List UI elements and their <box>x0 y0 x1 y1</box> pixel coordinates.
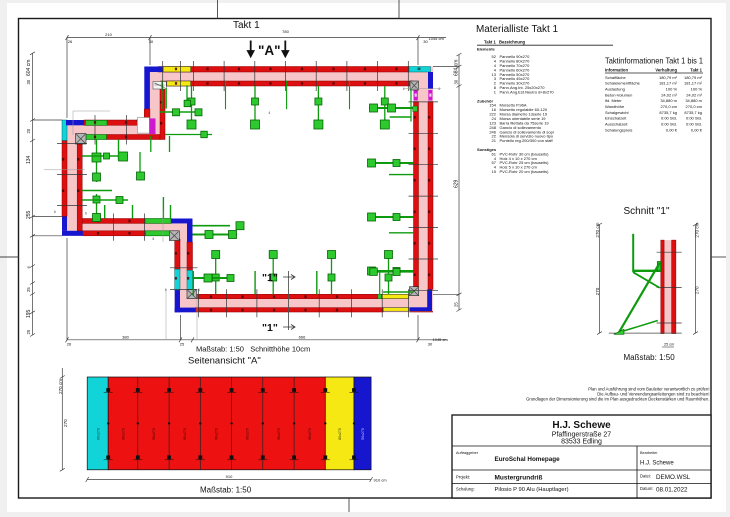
svg-text:Puntello reg.200/300 con staff: Puntello reg.200/300 con staff <box>500 138 554 143</box>
svg-text:604 cm: 604 cm <box>26 60 32 76</box>
svg-text:Takt 1: Takt 1 <box>484 40 496 45</box>
svg-text:210: 210 <box>105 32 112 37</box>
svg-text:4: 4 <box>403 87 405 91</box>
svg-text:Information: Information <box>605 68 628 73</box>
svg-text:270 cm: 270 cm <box>595 222 600 237</box>
svg-text:30: 30 <box>26 79 31 84</box>
svg-text:270: 270 <box>63 419 68 427</box>
svg-text:DEMO.WSL: DEMO.WSL <box>656 474 691 481</box>
svg-text:08.01.2022: 08.01.2022 <box>656 487 688 494</box>
svg-text:Wandhöhe: Wandhöhe <box>605 104 625 109</box>
svg-text:4: 4 <box>269 111 271 115</box>
svg-text:Maßstab: 1:50: Maßstab: 1:50 <box>624 353 676 362</box>
svg-text:8735,7 kg: 8735,7 kg <box>684 110 702 115</box>
svg-text:83533 Edling: 83533 Edling <box>561 439 602 446</box>
svg-text:Ausschalzeit: Ausschalzeit <box>605 122 628 127</box>
svg-text:Schalelementfläche: Schalelementfläche <box>605 81 641 86</box>
svg-text:"1": "1" <box>262 272 278 284</box>
svg-text:1045 cm: 1045 cm <box>429 36 445 41</box>
svg-text:4: 4 <box>438 87 440 91</box>
svg-text:Schalungspreis: Schalungspreis <box>605 127 632 132</box>
svg-text:0,00 €: 0,00 € <box>666 127 678 132</box>
svg-text:30: 30 <box>149 39 154 44</box>
svg-text:0:00 Std.: 0:00 Std. <box>686 116 702 121</box>
svg-text:26: 26 <box>67 342 72 347</box>
svg-text:181,17 m²: 181,17 m² <box>684 81 703 86</box>
svg-text:684 cm: 684 cm <box>453 60 459 76</box>
svg-text:Schalung:: Schalung: <box>456 487 475 492</box>
svg-text:780: 780 <box>282 29 289 34</box>
svg-text:H.J. Schewe: H.J. Schewe <box>640 461 674 467</box>
svg-text:0,00 €: 0,00 € <box>691 127 703 132</box>
svg-text:15: 15 <box>492 169 497 174</box>
svg-text:629: 629 <box>453 179 459 188</box>
svg-text:910: 910 <box>226 474 233 479</box>
svg-text:Mustergrundriß: Mustergrundriß <box>495 475 543 482</box>
svg-text:0:00 Std.: 0:00 Std. <box>661 122 677 127</box>
svg-text:EuroSchal Homepage: EuroSchal Homepage <box>495 456 561 463</box>
svg-text:50x270: 50x270 <box>361 428 365 440</box>
svg-text:Maßstab: 1:50: Maßstab: 1:50 <box>200 486 252 495</box>
svg-text:Verhaltung: Verhaltung <box>655 68 677 73</box>
svg-text:34,880 m: 34,880 m <box>660 98 677 103</box>
svg-text:Maßstab: 1:50 Schnitthöhe 10: Maßstab: 1:50 Schnitthöhe 10cm <box>196 345 310 354</box>
svg-text:30: 30 <box>428 342 433 347</box>
svg-text:"A": "A" <box>258 43 281 58</box>
svg-text:25 cm: 25 cm <box>664 343 674 347</box>
svg-text:180,79 m²: 180,79 m² <box>659 75 678 80</box>
svg-text:Bearbeiter: Bearbeiter <box>640 451 658 455</box>
svg-text:H.J. Schewe: H.J. Schewe <box>552 420 611 431</box>
svg-text:Taktinformationen Takt 1 bis: Taktinformationen Takt 1 bis 1 <box>605 56 703 66</box>
svg-text:255: 255 <box>26 210 32 219</box>
svg-text:Beton-Volumen: Beton-Volumen <box>605 92 632 97</box>
svg-text:"1": "1" <box>262 322 278 334</box>
svg-text:0:00 Std.: 0:00 Std. <box>686 122 702 127</box>
svg-text:24,02 m³: 24,02 m³ <box>686 92 702 97</box>
svg-text:6: 6 <box>54 210 56 214</box>
svg-text:134: 134 <box>26 155 32 164</box>
svg-text:90x270: 90x270 <box>215 428 219 440</box>
svg-text:270: 270 <box>695 286 700 294</box>
svg-text:Auslastung: Auslastung <box>605 87 625 92</box>
svg-text:Schnitt "1": Schnitt "1" <box>624 206 670 217</box>
svg-text:180,79 m²: 180,79 m² <box>684 75 703 80</box>
svg-text:Grundlagen der Dimensionierung: Grundlagen der Dimensionierung sind die … <box>526 397 709 402</box>
svg-text:25: 25 <box>26 287 31 292</box>
svg-text:Elemente: Elemente <box>477 47 496 52</box>
svg-text:Schalfläche: Schalfläche <box>605 75 626 80</box>
svg-text:25: 25 <box>453 302 458 307</box>
svg-text:195: 195 <box>26 309 32 318</box>
svg-text:6: 6 <box>153 237 155 241</box>
svg-text:910 cm: 910 cm <box>374 477 388 482</box>
svg-text:Auftraggeber: Auftraggeber <box>456 451 479 455</box>
svg-text:666: 666 <box>299 334 306 339</box>
svg-text:Schalgewicht: Schalgewicht <box>605 110 629 115</box>
svg-text:6: 6 <box>198 288 200 292</box>
svg-text:90x270: 90x270 <box>183 428 187 440</box>
svg-text:20: 20 <box>26 128 31 133</box>
svg-text:90x270: 90x270 <box>277 428 281 440</box>
svg-text:270 cm: 270 cm <box>695 222 700 237</box>
svg-text:80x270: 80x270 <box>338 428 342 440</box>
svg-text:90x270: 90x270 <box>308 428 312 440</box>
svg-text:Takt 1: Takt 1 <box>233 20 260 31</box>
svg-text:181,17 m²: 181,17 m² <box>659 81 678 86</box>
svg-text:Einschalzeit: Einschalzeit <box>605 116 627 121</box>
svg-text:270,0 cm: 270,0 cm <box>661 104 678 109</box>
svg-text:25: 25 <box>26 329 31 334</box>
svg-text:26: 26 <box>68 39 73 44</box>
svg-text:60x270: 60x270 <box>97 428 101 440</box>
svg-text:380: 380 <box>122 334 129 339</box>
svg-text:Datei:: Datei: <box>640 474 651 479</box>
svg-text:90x270: 90x270 <box>246 428 250 440</box>
svg-text:Bezeichnung: Bezeichnung <box>499 40 525 45</box>
svg-text:0:00 Std.: 0:00 Std. <box>661 116 677 121</box>
svg-text:1045 cm: 1045 cm <box>433 337 449 342</box>
svg-text:30: 30 <box>453 79 458 84</box>
svg-text:Seitenansicht "A": Seitenansicht "A" <box>188 356 261 367</box>
svg-text:lfd. Meter: lfd. Meter <box>605 98 622 103</box>
svg-text:Projekt:: Projekt: <box>456 475 470 480</box>
svg-text:90x270: 90x270 <box>152 428 156 440</box>
svg-text:100 %: 100 % <box>666 87 678 92</box>
svg-text:100 %: 100 % <box>691 87 703 92</box>
svg-text:Pfaffingerstraße 27: Pfaffingerstraße 27 <box>552 432 612 439</box>
svg-text:6: 6 <box>85 212 87 216</box>
svg-text:PVC-Rohr 20 cm (bauseits): PVC-Rohr 20 cm (bauseits) <box>500 169 550 174</box>
svg-text:270: 270 <box>595 287 600 295</box>
svg-text:Datum:: Datum: <box>640 486 654 491</box>
svg-text:Pann.Ang.Est.Neutro 8+8x270: Pann.Ang.Est.Neutro 8+8x270 <box>500 90 555 95</box>
svg-text:25: 25 <box>180 342 185 347</box>
svg-text:90x270: 90x270 <box>122 428 126 440</box>
svg-text:Takt 1: Takt 1 <box>690 68 702 73</box>
svg-text:34,880 m: 34,880 m <box>685 98 702 103</box>
svg-text:270,0 cm: 270,0 cm <box>686 104 703 109</box>
svg-text:21: 21 <box>492 138 497 143</box>
svg-text:Pilosio P 90 Alu (Hauptlager): Pilosio P 90 Alu (Hauptlager) <box>495 487 569 493</box>
svg-text:270 cm: 270 cm <box>58 379 63 394</box>
svg-text:8735,7 kg: 8735,7 kg <box>659 110 677 115</box>
svg-text:24,02 m³: 24,02 m³ <box>661 92 677 97</box>
svg-text:Materialliste Takt 1: Materialliste Takt 1 <box>476 24 558 35</box>
